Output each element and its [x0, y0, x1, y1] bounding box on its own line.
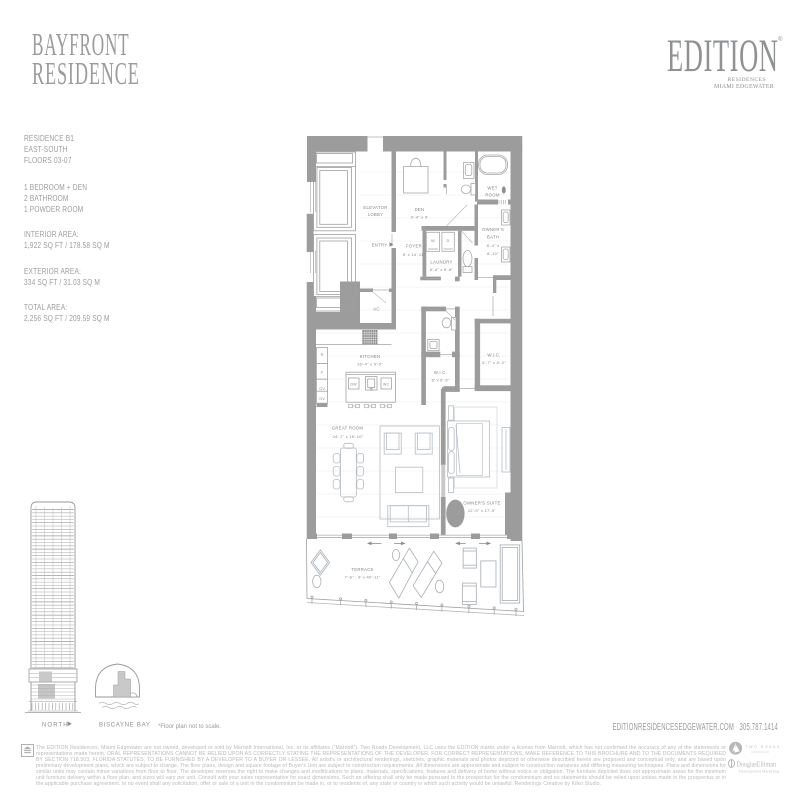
svg-text:DouglasElliman: DouglasElliman: [737, 761, 777, 769]
svg-text:LOBBY: LOBBY: [368, 212, 384, 217]
svg-text:GREAT ROOM: GREAT ROOM: [332, 426, 364, 431]
svg-text:TERRACE: TERRACE: [351, 567, 373, 572]
svg-text:OWNER'S: OWNER'S: [482, 227, 504, 232]
svg-text:W.I.C.: W.I.C.: [487, 353, 500, 358]
svg-text:F: F: [321, 370, 324, 375]
svg-text:7'-6" - 9' x 40'-11": 7'-6" - 9' x 40'-11": [345, 575, 381, 580]
svg-text:OV: OV: [319, 387, 325, 391]
svg-text:9'-4" x 9': 9'-4" x 9': [411, 215, 429, 220]
svg-text:WET: WET: [487, 186, 497, 191]
svg-text:6'-4" x 6'-8": 6'-4" x 6'-8": [430, 267, 454, 272]
svg-text:8'-4" x: 8'-4" x: [487, 243, 500, 248]
svg-text:6' x 6'-9": 6' x 6'-9": [432, 378, 450, 383]
svg-text:NORTH: NORTH: [42, 723, 69, 729]
svg-text:BISCAYNE BAY: BISCAYNE BAY: [99, 723, 151, 729]
svg-text:16'-4" x 9'-9": 16'-4" x 9'-9": [357, 362, 383, 367]
svg-text:OV: OV: [319, 397, 325, 401]
svg-text:24'-7" x 16'-10": 24'-7" x 16'-10": [333, 434, 364, 439]
svg-text:TWO ROADS: TWO ROADS: [746, 745, 781, 749]
svg-text:AC: AC: [373, 307, 379, 312]
svg-text:W: W: [431, 238, 435, 243]
svg-text:LAUNDRY: LAUNDRY: [430, 260, 452, 265]
svg-text:D: D: [446, 238, 449, 243]
svg-text:*Floor plan not to scale.: *Floor plan not to scale.: [158, 724, 221, 730]
svg-text:6' x 14'-11": 6' x 14'-11": [403, 252, 426, 257]
svg-text:BATH: BATH: [487, 235, 499, 240]
svg-text:ENTRY: ENTRY: [372, 243, 388, 248]
svg-text:ELEVATOR: ELEVATOR: [363, 205, 387, 210]
svg-text:DEN: DEN: [415, 207, 425, 212]
svg-text:W.I.C.: W.I.C.: [434, 370, 447, 375]
svg-text:ROOM: ROOM: [485, 193, 500, 198]
svg-text:WC: WC: [383, 383, 390, 387]
svg-text:OWNER'S SUITE: OWNER'S SUITE: [463, 501, 500, 506]
svg-text:12'-9" x 17'-9": 12'-9" x 17'-9": [468, 508, 497, 513]
svg-text:FOYER: FOYER: [406, 244, 422, 249]
svg-text:8'-10": 8'-10": [487, 251, 499, 256]
svg-text:R: R: [321, 352, 324, 357]
svg-text:6'-7" x 8'-3": 6'-7" x 8'-3": [482, 360, 506, 365]
svg-text:KITCHEN: KITCHEN: [360, 354, 381, 359]
svg-text:Development Marketing: Development Marketing: [739, 770, 779, 774]
svg-text:DW: DW: [351, 383, 358, 387]
